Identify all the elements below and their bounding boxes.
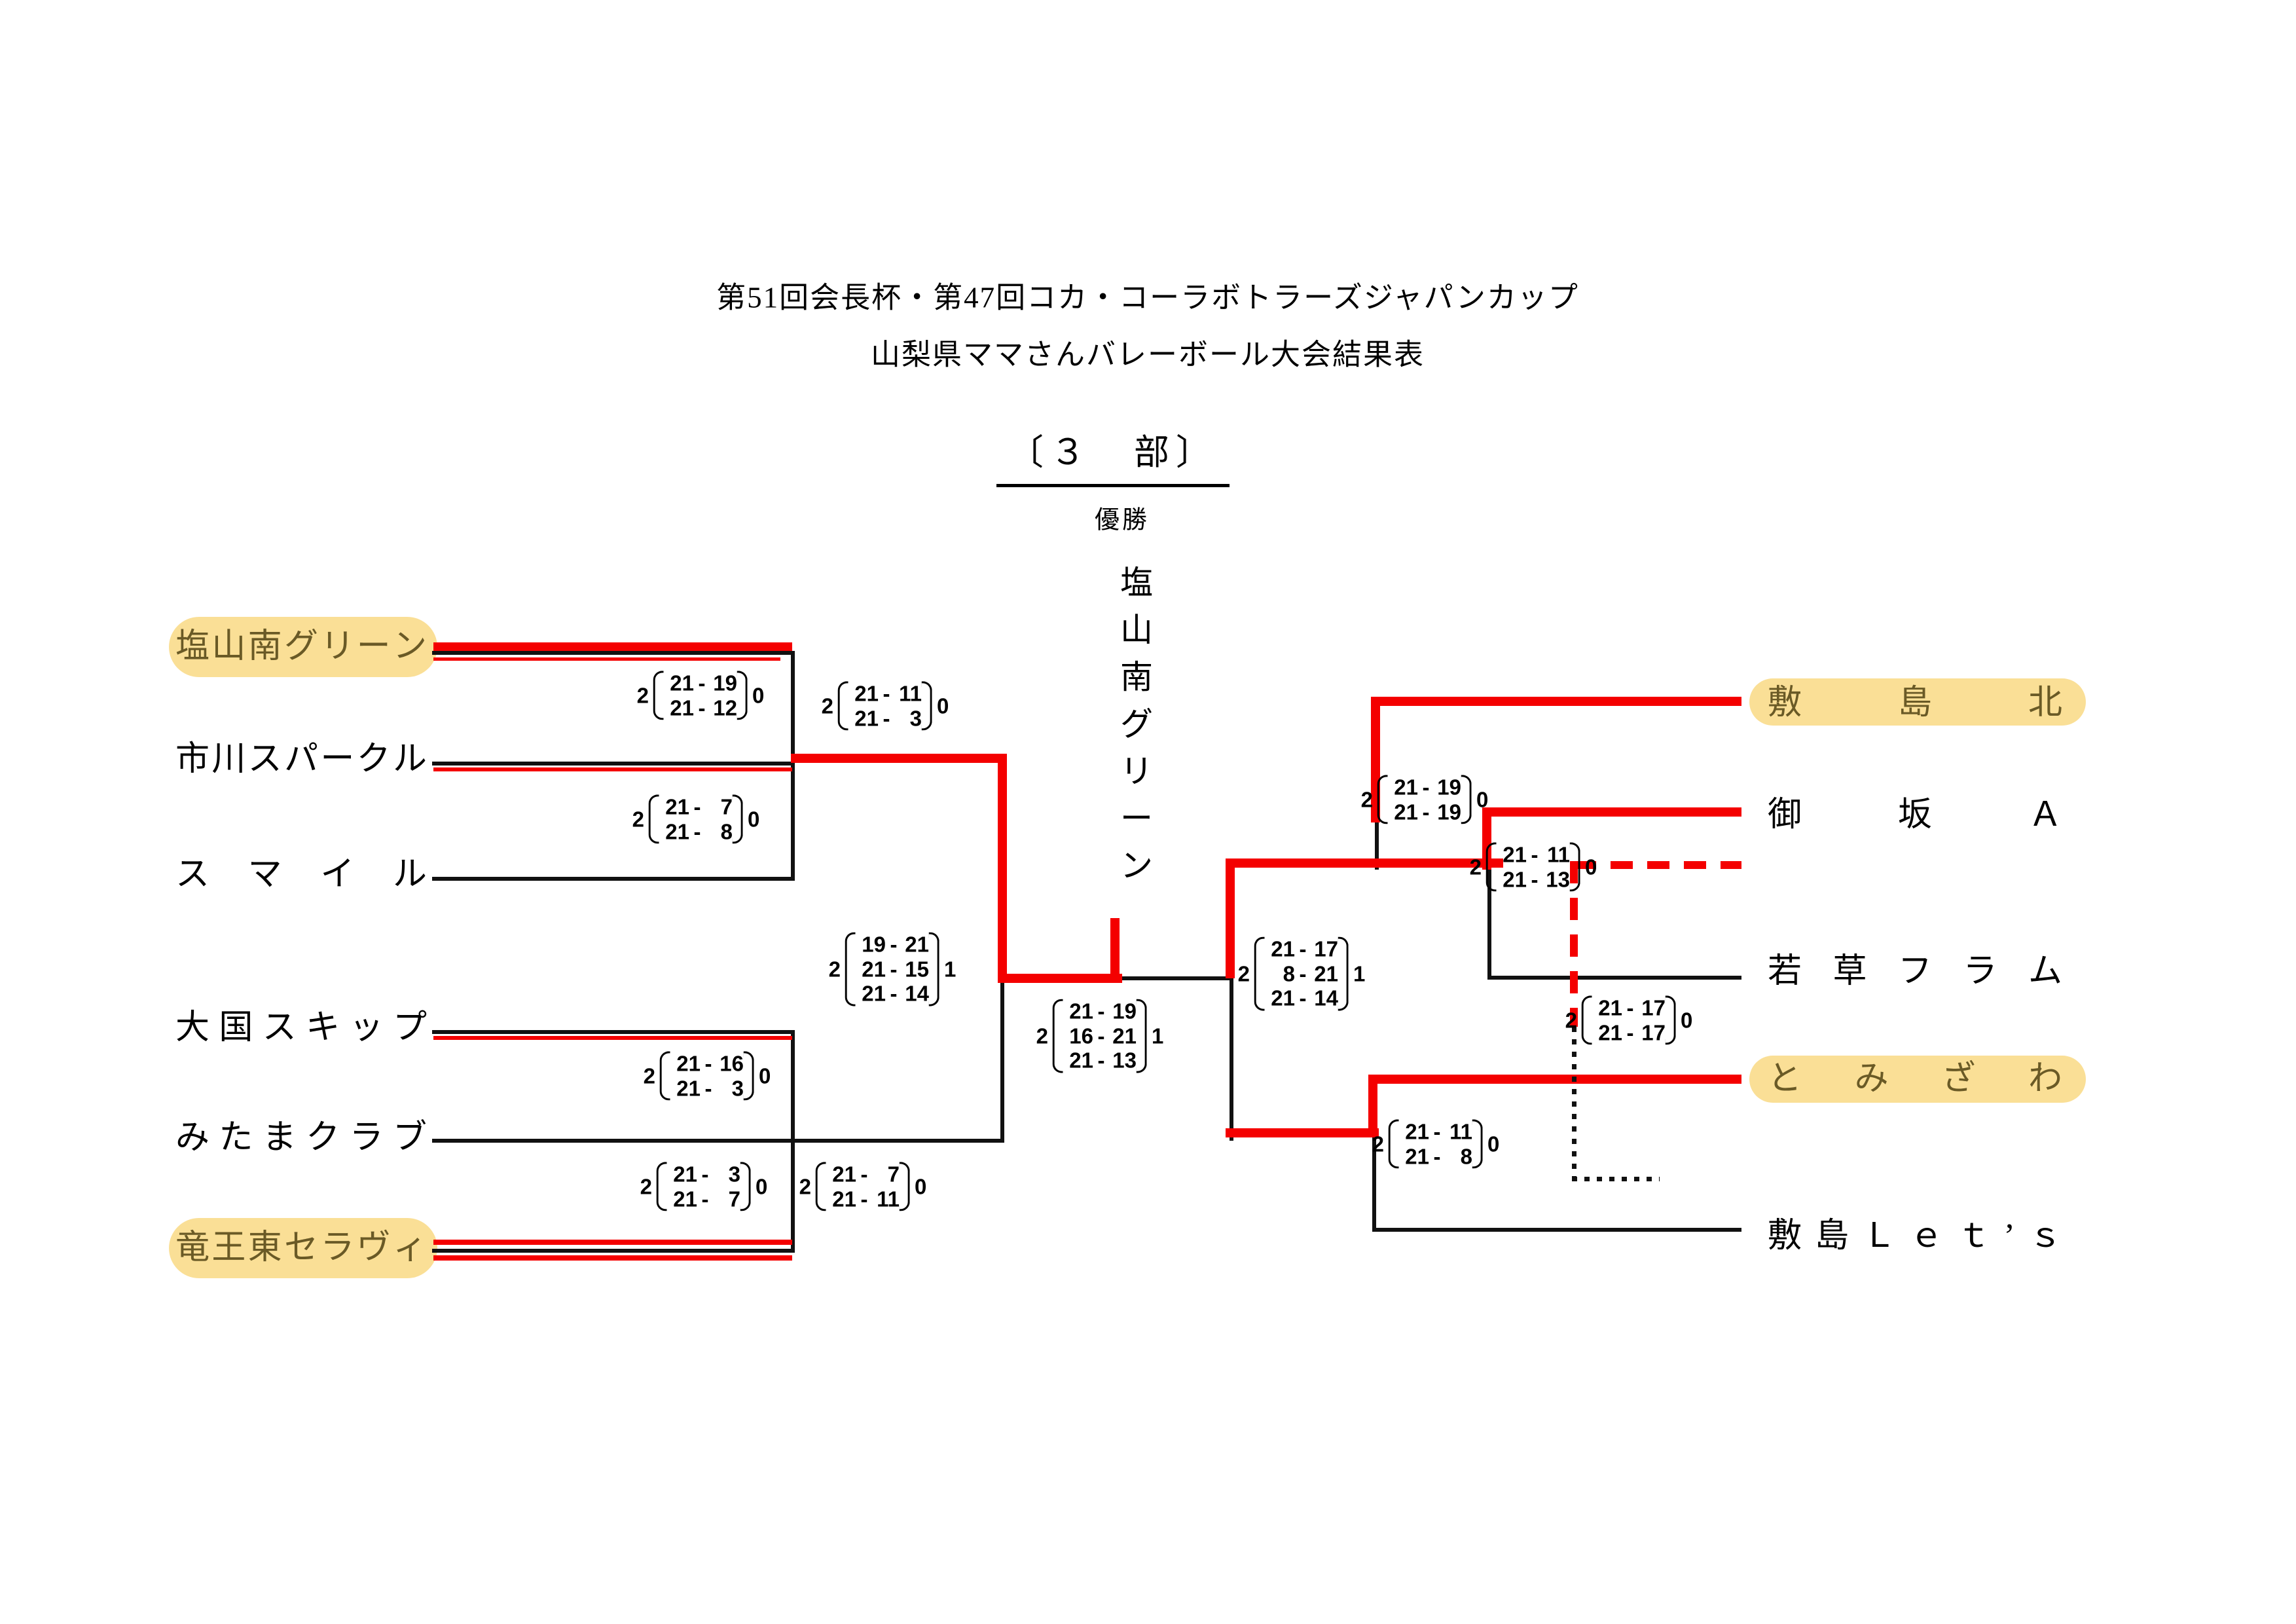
sets-won-top: 2 [1032, 1024, 1053, 1048]
set-score-value: - [1093, 1024, 1109, 1048]
set-score-value: 21 [1265, 986, 1295, 1011]
winner-path [1368, 1075, 1741, 1084]
set-score-row: 21-3 [667, 1162, 740, 1187]
set-score-row: 21-19 [1388, 775, 1461, 800]
set-score-row: 16-21 [1063, 1024, 1137, 1048]
team-name-char: グ [284, 630, 318, 664]
set-score-value: - [886, 932, 902, 957]
set-score-value: 21 [670, 1051, 701, 1076]
team-name-char: Ａ [2028, 798, 2062, 832]
score-bracket [1389, 1119, 1399, 1168]
set-score-row: 8-21 [1265, 961, 1338, 986]
team-name-char: 塩 [1120, 557, 1153, 604]
sets-won-bottom: 0 [1483, 1132, 1504, 1156]
winner-path [1482, 807, 1741, 817]
set-score-value: 21 [848, 706, 879, 731]
score-bracket [1338, 937, 1349, 1011]
score-bracket [845, 932, 856, 1006]
sets-won-top: 2 [1357, 787, 1377, 812]
set-score-value: 21 [1497, 842, 1527, 867]
set-score-value: 16 [1063, 1024, 1093, 1048]
set-scores: 21-1121-8 [1399, 1119, 1472, 1168]
team-name-char: ヴ [357, 1231, 391, 1265]
set-score-value: - [1622, 1020, 1638, 1045]
set-score-value: - [1429, 1119, 1445, 1144]
set-score-row: 19-21 [856, 932, 929, 957]
team-name-char: わ [2028, 1062, 2062, 1096]
set-score-value: 21 [856, 982, 886, 1006]
champion-name: 塩山南グリーン [1117, 557, 1156, 784]
set-score-value: 13 [1542, 867, 1570, 892]
set-score-row: 21-8 [659, 819, 733, 844]
score-bracket [900, 1162, 910, 1211]
set-score-value: 21 [826, 1187, 856, 1211]
team-name-char: 山 [211, 630, 246, 664]
bracket-line [791, 1139, 1004, 1143]
set-score-value: 13 [1109, 1048, 1137, 1073]
score-bracket [816, 1162, 826, 1211]
winner-path [791, 754, 1007, 763]
team-name-char: 山 [1120, 604, 1153, 651]
team-name-char: ラ [320, 1231, 354, 1265]
team-name-char: ク [357, 743, 391, 777]
team-name-char: ク [306, 1121, 340, 1155]
score-bracket [660, 1051, 670, 1100]
team-name-char: ラ [1963, 955, 1997, 989]
sets-won-top: 2 [795, 1174, 816, 1199]
set-score-value: 21 [902, 932, 929, 957]
set-score-value: 21 [1063, 999, 1093, 1024]
winner-path [433, 767, 792, 771]
score-bracket [649, 794, 659, 843]
team-name-char: ’ [2004, 1219, 2015, 1253]
sets-won-top: 2 [636, 1174, 657, 1199]
set-score-value: 3 [716, 1076, 744, 1101]
team-name-char: ル [393, 858, 427, 892]
set-score-value: - [1295, 937, 1311, 962]
score-box: 221-1921-120 [632, 671, 769, 720]
team-name-char: 若 [1768, 955, 1802, 989]
team-name-char: ざ [1941, 1062, 1975, 1096]
bracket-line [432, 877, 794, 881]
set-score-value: 21 [1311, 961, 1338, 986]
team-name-char: 国 [219, 1011, 253, 1045]
set-score-value: - [856, 1187, 872, 1211]
team-name-char: 敷 [1768, 1219, 1802, 1253]
team-name-char: ラ [350, 1121, 384, 1155]
set-score-row: 21-19 [1063, 999, 1137, 1024]
set-score-row: 21-12 [664, 695, 737, 720]
score-bracket [1053, 999, 1063, 1073]
set-score-row: 21-16 [670, 1051, 744, 1076]
sets-won-top: 2 [1233, 961, 1254, 986]
set-score-value: 21 [667, 1162, 697, 1187]
score-box: 221-1916-2121-131 [1032, 999, 1169, 1073]
team-name-char: グ [1120, 698, 1153, 745]
sets-won-top: 2 [1465, 855, 1486, 879]
set-score-value: - [1418, 800, 1434, 824]
set-score-value: 21 [1265, 937, 1295, 962]
winner-path [1226, 1128, 1379, 1137]
team-name-char: プ [393, 1011, 427, 1045]
team-name-char: ル [393, 743, 427, 777]
set-score-row: 21-15 [856, 957, 929, 982]
set-score-value: - [879, 706, 894, 731]
sets-won-bottom: 0 [1472, 787, 1493, 812]
team-name: 塩山南グリーン [175, 630, 427, 664]
set-score-value: 19 [1109, 999, 1137, 1024]
set-score-row: 21-17 [1265, 937, 1338, 962]
score-bracket [733, 794, 743, 843]
set-score-value: - [689, 819, 705, 844]
team-name-char: フ [1898, 955, 1932, 989]
set-score-value: 14 [902, 982, 929, 1006]
set-score-value: - [1418, 775, 1434, 800]
score-bracket [740, 1162, 751, 1211]
score-box: 221-321-70 [636, 1162, 773, 1211]
team-name-char: 王 [211, 1231, 246, 1265]
team-name-char: ｔ [1956, 1219, 1990, 1253]
set-score-value: 21 [1388, 800, 1418, 824]
team-name-char: 東 [248, 1231, 282, 1265]
winner-path [433, 1036, 792, 1040]
team-name-char: ッ [350, 1011, 384, 1045]
team-name-char: ン [393, 630, 427, 664]
set-score-value: 21 [664, 671, 694, 695]
sets-won-bottom: 1 [1147, 1024, 1168, 1048]
bracket-line [1372, 1228, 1741, 1232]
set-score-value: 21 [659, 794, 689, 819]
team-name-char: と [1768, 1062, 1802, 1096]
score-bracket [1582, 995, 1592, 1044]
score-box: 219-2121-1521-141 [824, 932, 961, 1006]
sets-won-top: 2 [628, 807, 649, 832]
tournament-title-line1: 第51回会長杯・第47回コカ・コーラボトラーズジャパンカップ [716, 274, 1579, 316]
team-name: 竜王東セラヴィ [175, 1231, 427, 1265]
team-name-char: ス [263, 1011, 297, 1045]
set-score-row: 21-7 [826, 1162, 900, 1187]
sets-won-bottom: 1 [1349, 961, 1370, 986]
set-score-value: 3 [894, 706, 922, 731]
team-name-char: ン [1120, 840, 1153, 887]
team-name: 敷島北 [1768, 686, 2062, 720]
set-score-row: 21-7 [659, 794, 733, 819]
set-score-value: 21 [848, 681, 879, 706]
bracket-line [432, 762, 794, 766]
team-name-char: ー [357, 630, 391, 664]
set-score-value: - [1429, 1144, 1445, 1169]
team-name-char: ｓ [2028, 1219, 2062, 1253]
team-name: 敷島Ｌｅｔ’ｓ [1768, 1219, 2062, 1253]
score-bracket [838, 681, 848, 730]
set-score-value: 21 [670, 1076, 701, 1101]
score-bracket [1137, 999, 1147, 1073]
bracket-line [1487, 976, 1741, 980]
set-scores: 21-1916-2121-13 [1063, 999, 1137, 1073]
team-name-char: 草 [1832, 955, 1867, 989]
team-name: みたまクラブ [175, 1121, 427, 1155]
set-score-value: - [697, 1187, 713, 1211]
team-name: 御坂Ａ [1768, 798, 2062, 832]
tournament-sheet: 第51回会長杯・第47回コカ・コーラボトラーズジャパンカップ 山梨県ママさんバレ… [0, 0, 2296, 1624]
set-score-row: 21-14 [856, 982, 929, 1006]
score-bracket [744, 1051, 754, 1100]
set-scores: 21-1621-3 [670, 1051, 744, 1100]
dotted-black-line [1572, 1027, 1576, 1179]
set-score-value: - [689, 794, 705, 819]
team-name: とみざわ [1768, 1062, 2062, 1096]
set-score-value: - [701, 1076, 716, 1101]
set-score-value: 7 [705, 794, 733, 819]
set-score-value: - [694, 695, 710, 720]
team-name-char: ｅ [1909, 1219, 1943, 1253]
set-score-value: 21 [667, 1187, 697, 1211]
sets-won-top: 2 [824, 957, 845, 982]
score-bracket [1377, 775, 1388, 824]
team-name: 若草フラム [1768, 955, 2062, 989]
team-name-char: 島 [1898, 686, 1932, 720]
set-score-value: - [886, 957, 902, 982]
team-name-char: ま [263, 1121, 297, 1155]
team-name-char: 御 [1768, 798, 1802, 832]
sets-won-bottom: 0 [754, 1063, 775, 1088]
sets-won-bottom: 0 [743, 807, 764, 832]
team-name-char: キ [306, 1011, 340, 1045]
bracket-line [432, 651, 794, 655]
set-scores: 21-321-7 [667, 1162, 740, 1211]
team-name-char: み [1855, 1062, 1889, 1096]
set-score-value: 17 [1638, 1020, 1666, 1045]
set-score-value: 21 [856, 957, 886, 982]
set-score-value: 21 [1592, 995, 1622, 1020]
team-name: スマイル [175, 858, 427, 892]
set-scores: 21-721-11 [826, 1162, 900, 1211]
set-score-value: - [1093, 1048, 1109, 1073]
set-score-value: 16 [716, 1051, 744, 1076]
winner-path-champion-stub [1110, 918, 1120, 978]
set-score-value: 17 [1638, 995, 1666, 1020]
score-bracket [1461, 775, 1472, 824]
set-score-value: - [1527, 867, 1542, 892]
score-bracket [1666, 995, 1676, 1044]
set-score-row: 21-7 [667, 1187, 740, 1211]
sets-won-bottom: 0 [910, 1174, 931, 1199]
team-name-char: 南 [248, 630, 282, 664]
team-name-char: マ [248, 858, 282, 892]
set-score-value: - [1527, 842, 1542, 867]
team-name-char: ー [320, 743, 354, 777]
set-score-value: - [856, 1162, 872, 1187]
sets-won-top: 2 [639, 1063, 660, 1088]
winner-path [433, 642, 792, 651]
team-name-char: 市 [175, 743, 210, 777]
section-heading: 〔３ 部〕 [996, 423, 1230, 487]
set-score-row: 21-11 [848, 681, 922, 706]
team-name-char: 坂 [1898, 798, 1932, 832]
score-bracket [1486, 842, 1497, 891]
set-score-value: 21 [1063, 1048, 1093, 1073]
set-score-value: - [879, 681, 894, 706]
bracket-line [432, 1139, 794, 1143]
team-name-char: セ [284, 1231, 318, 1265]
sets-won-bottom: 0 [751, 1174, 772, 1199]
set-score-row: 21-14 [1265, 986, 1338, 1011]
bracket-line [432, 1030, 794, 1034]
score-box: 221-1921-190 [1357, 775, 1493, 824]
set-score-value: 7 [713, 1187, 740, 1211]
set-score-value: 15 [902, 957, 929, 982]
score-box: 221-178-2121-141 [1233, 937, 1370, 1011]
team-name-char: ス [248, 743, 282, 777]
set-score-value: - [1093, 999, 1109, 1024]
sets-won-bottom: 1 [939, 957, 960, 982]
set-score-row: 21-3 [848, 706, 922, 731]
score-bracket [737, 671, 748, 720]
team-name-char: リ [1120, 745, 1153, 792]
set-score-value: 11 [872, 1187, 900, 1211]
bracket-line [791, 651, 795, 881]
set-score-row: 21-13 [1063, 1048, 1137, 1073]
set-score-row: 21-11 [1399, 1119, 1472, 1144]
team-name: 大国スキップ [175, 1011, 427, 1045]
set-score-value: - [701, 1051, 716, 1076]
sets-won-top: 2 [817, 693, 838, 718]
set-score-value: 12 [710, 695, 737, 720]
team-name: 市川スパークル [175, 743, 427, 777]
set-score-value: 21 [1388, 775, 1418, 800]
set-score-value: 11 [1542, 842, 1570, 867]
team-name-char: 南 [1120, 651, 1153, 698]
set-score-value: - [697, 1162, 713, 1187]
set-scores: 21-1721-17 [1592, 995, 1666, 1044]
team-name-char: 川 [211, 743, 246, 777]
team-name-char: パ [284, 743, 318, 777]
set-scores: 19-2121-1521-14 [856, 932, 929, 1006]
set-scores: 21-1121-3 [848, 681, 922, 730]
winner-path [433, 657, 780, 661]
set-score-value: 11 [894, 681, 922, 706]
set-score-value: 8 [705, 819, 733, 844]
set-score-row: 21-11 [1497, 842, 1570, 867]
set-scores: 21-1921-12 [664, 671, 737, 720]
sets-won-bottom: 0 [1676, 1008, 1697, 1033]
team-name-char: 島 [1815, 1219, 1849, 1253]
set-scores: 21-1921-19 [1388, 775, 1461, 824]
set-scores: 21-178-2121-14 [1265, 937, 1338, 1011]
set-score-value: - [1622, 995, 1638, 1020]
set-score-value: 21 [664, 695, 694, 720]
team-name-char: ス [175, 858, 210, 892]
team-name-char: ブ [393, 1121, 427, 1155]
set-score-row: 21-17 [1592, 995, 1666, 1020]
team-name-char: イ [320, 858, 354, 892]
sets-won-top: 2 [632, 683, 653, 708]
team-name-char: ィ [393, 1231, 427, 1265]
winner-path [998, 758, 1007, 978]
set-scores: 21-721-8 [659, 794, 733, 843]
team-name-char: ー [1120, 792, 1153, 840]
winner-path [1371, 697, 1741, 706]
team-name-char: リ [320, 630, 354, 664]
set-score-value: - [886, 982, 902, 1006]
set-score-row: 21-17 [1592, 1020, 1666, 1045]
team-name-char: ム [2028, 955, 2062, 989]
set-score-value: 19 [856, 932, 886, 957]
team-name-char: た [219, 1121, 253, 1155]
set-score-row: 21-13 [1497, 867, 1570, 892]
dotted-black-line [1572, 1177, 1660, 1181]
score-bracket [922, 681, 932, 730]
set-score-value: 21 [1497, 867, 1527, 892]
set-score-value: 7 [872, 1162, 900, 1187]
set-score-value: 17 [1311, 937, 1338, 962]
winner-path [433, 1255, 792, 1261]
tournament-title-line2: 山梨県ママさんバレーボール大会結果表 [871, 331, 1425, 373]
score-box: 221-1121-30 [817, 681, 954, 730]
team-name-char: 塩 [175, 630, 210, 664]
score-box: 221-1721-170 [1561, 995, 1698, 1044]
set-score-value: 21 [1399, 1119, 1429, 1144]
team-name-char: 竜 [175, 1231, 210, 1265]
score-bracket [1472, 1119, 1483, 1168]
set-score-value: 14 [1311, 986, 1338, 1011]
set-score-value: 19 [1434, 775, 1461, 800]
winner-path [1226, 858, 1503, 868]
team-name-char: 敷 [1768, 686, 1802, 720]
sets-won-top: 2 [1561, 1008, 1582, 1033]
set-score-value: 21 [1399, 1144, 1429, 1169]
set-score-value: 3 [713, 1162, 740, 1187]
score-box: 221-1621-30 [639, 1051, 776, 1100]
set-score-row: 21-19 [1388, 800, 1461, 824]
sets-won-bottom: 0 [1580, 855, 1601, 879]
team-name-char: Ｌ [1862, 1219, 1896, 1253]
score-bracket [653, 671, 664, 720]
winner-path [998, 974, 1122, 983]
set-score-value: 19 [710, 671, 737, 695]
set-score-value: 19 [1434, 800, 1461, 824]
score-box: 221-1121-130 [1465, 842, 1602, 891]
bracket-line [1120, 976, 1233, 980]
sets-won-bottom: 0 [932, 693, 953, 718]
score-bracket [1570, 842, 1580, 891]
sets-won-bottom: 0 [748, 683, 769, 708]
set-score-value: 8 [1265, 961, 1295, 986]
score-box: 221-721-80 [628, 794, 765, 843]
team-name-char: み [175, 1121, 210, 1155]
set-score-value: 21 [826, 1162, 856, 1187]
set-score-value: 11 [1445, 1119, 1472, 1144]
score-bracket [657, 1162, 667, 1211]
team-name-char: 大 [175, 1011, 210, 1045]
set-score-value: - [694, 671, 710, 695]
bracket-line [432, 1249, 794, 1253]
score-bracket [929, 932, 939, 1006]
team-name-char: 北 [2028, 686, 2062, 720]
set-score-value: 21 [659, 819, 689, 844]
bracket-line [1000, 978, 1004, 1143]
score-bracket [1254, 937, 1265, 1011]
sets-won-top: 2 [1368, 1132, 1389, 1156]
set-score-value: - [1295, 986, 1311, 1011]
set-score-row: 21-8 [1399, 1144, 1472, 1169]
score-box: 221-1121-80 [1368, 1119, 1504, 1168]
set-score-value: 21 [1592, 1020, 1622, 1045]
set-score-value: 21 [1109, 1024, 1137, 1048]
score-box: 221-721-110 [795, 1162, 932, 1211]
set-score-value: 8 [1445, 1144, 1472, 1169]
set-score-row: 21-19 [664, 671, 737, 695]
